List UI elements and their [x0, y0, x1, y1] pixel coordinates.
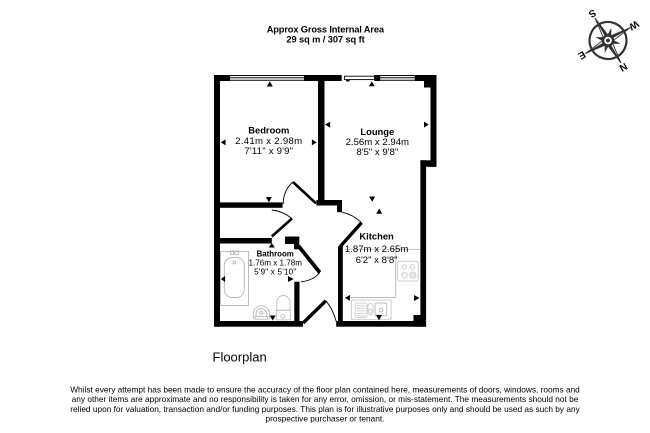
svg-text:Approx Gross Internal Area: Approx Gross Internal Area — [267, 24, 385, 34]
svg-text:Bathroom: Bathroom — [257, 249, 294, 258]
svg-text:any other items are approximat: any other items are approximate and no r… — [72, 394, 579, 404]
svg-text:8'5" x 9'8": 8'5" x 9'8" — [356, 147, 398, 158]
svg-text:relied upon for valuation, tra: relied upon for valuation, transaction a… — [70, 404, 580, 414]
svg-text:6'2" x 8'8": 6'2" x 8'8" — [356, 255, 398, 266]
svg-text:prospective purchaser or tenan: prospective purchaser or tenant. — [266, 414, 385, 424]
svg-text:Whilst every attempt has been: Whilst every attempt has been made to en… — [70, 384, 580, 394]
svg-text:29 sq m / 307 sq ft: 29 sq m / 307 sq ft — [286, 35, 364, 45]
svg-text:Bedroom: Bedroom — [248, 124, 289, 135]
svg-text:5'9" x 5'10": 5'9" x 5'10" — [254, 267, 296, 276]
svg-text:Kitchen: Kitchen — [359, 230, 394, 241]
svg-text:1.87m x 2.65m: 1.87m x 2.65m — [345, 244, 408, 255]
svg-text:Floorplan: Floorplan — [213, 350, 267, 365]
svg-text:Lounge: Lounge — [360, 126, 394, 137]
svg-text:1.76m x 1.78m: 1.76m x 1.78m — [249, 259, 303, 268]
svg-text:7'11" x 9'9": 7'11" x 9'9" — [244, 146, 293, 157]
